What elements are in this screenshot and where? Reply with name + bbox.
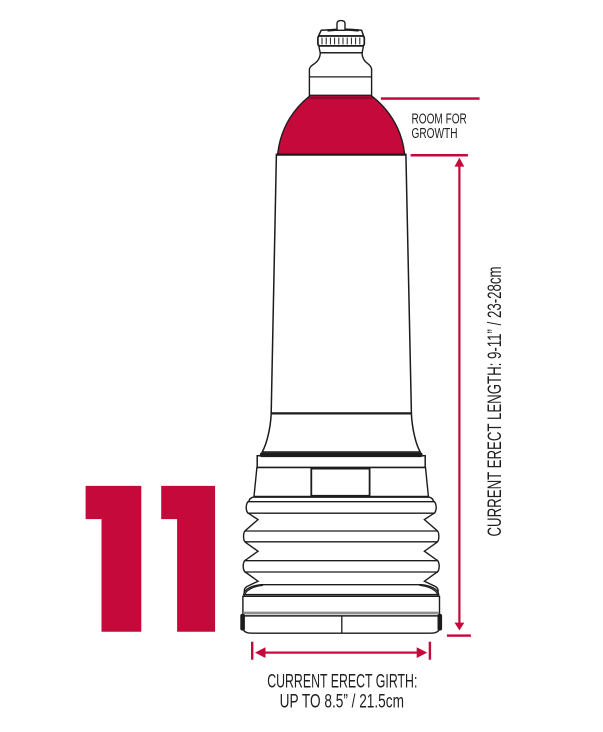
svg-text:CURRENT ERECT LENGTH: 9-11” /: CURRENT ERECT LENGTH: 9-11” / 23-28cm <box>484 267 506 537</box>
svg-text:UP TO 8.5” / 21.5cm: UP TO 8.5” / 21.5cm <box>280 690 404 712</box>
svg-text:CURRENT ERECT GIRTH:: CURRENT ERECT GIRTH: <box>267 670 417 692</box>
svg-text:GROWTH: GROWTH <box>412 126 458 142</box>
